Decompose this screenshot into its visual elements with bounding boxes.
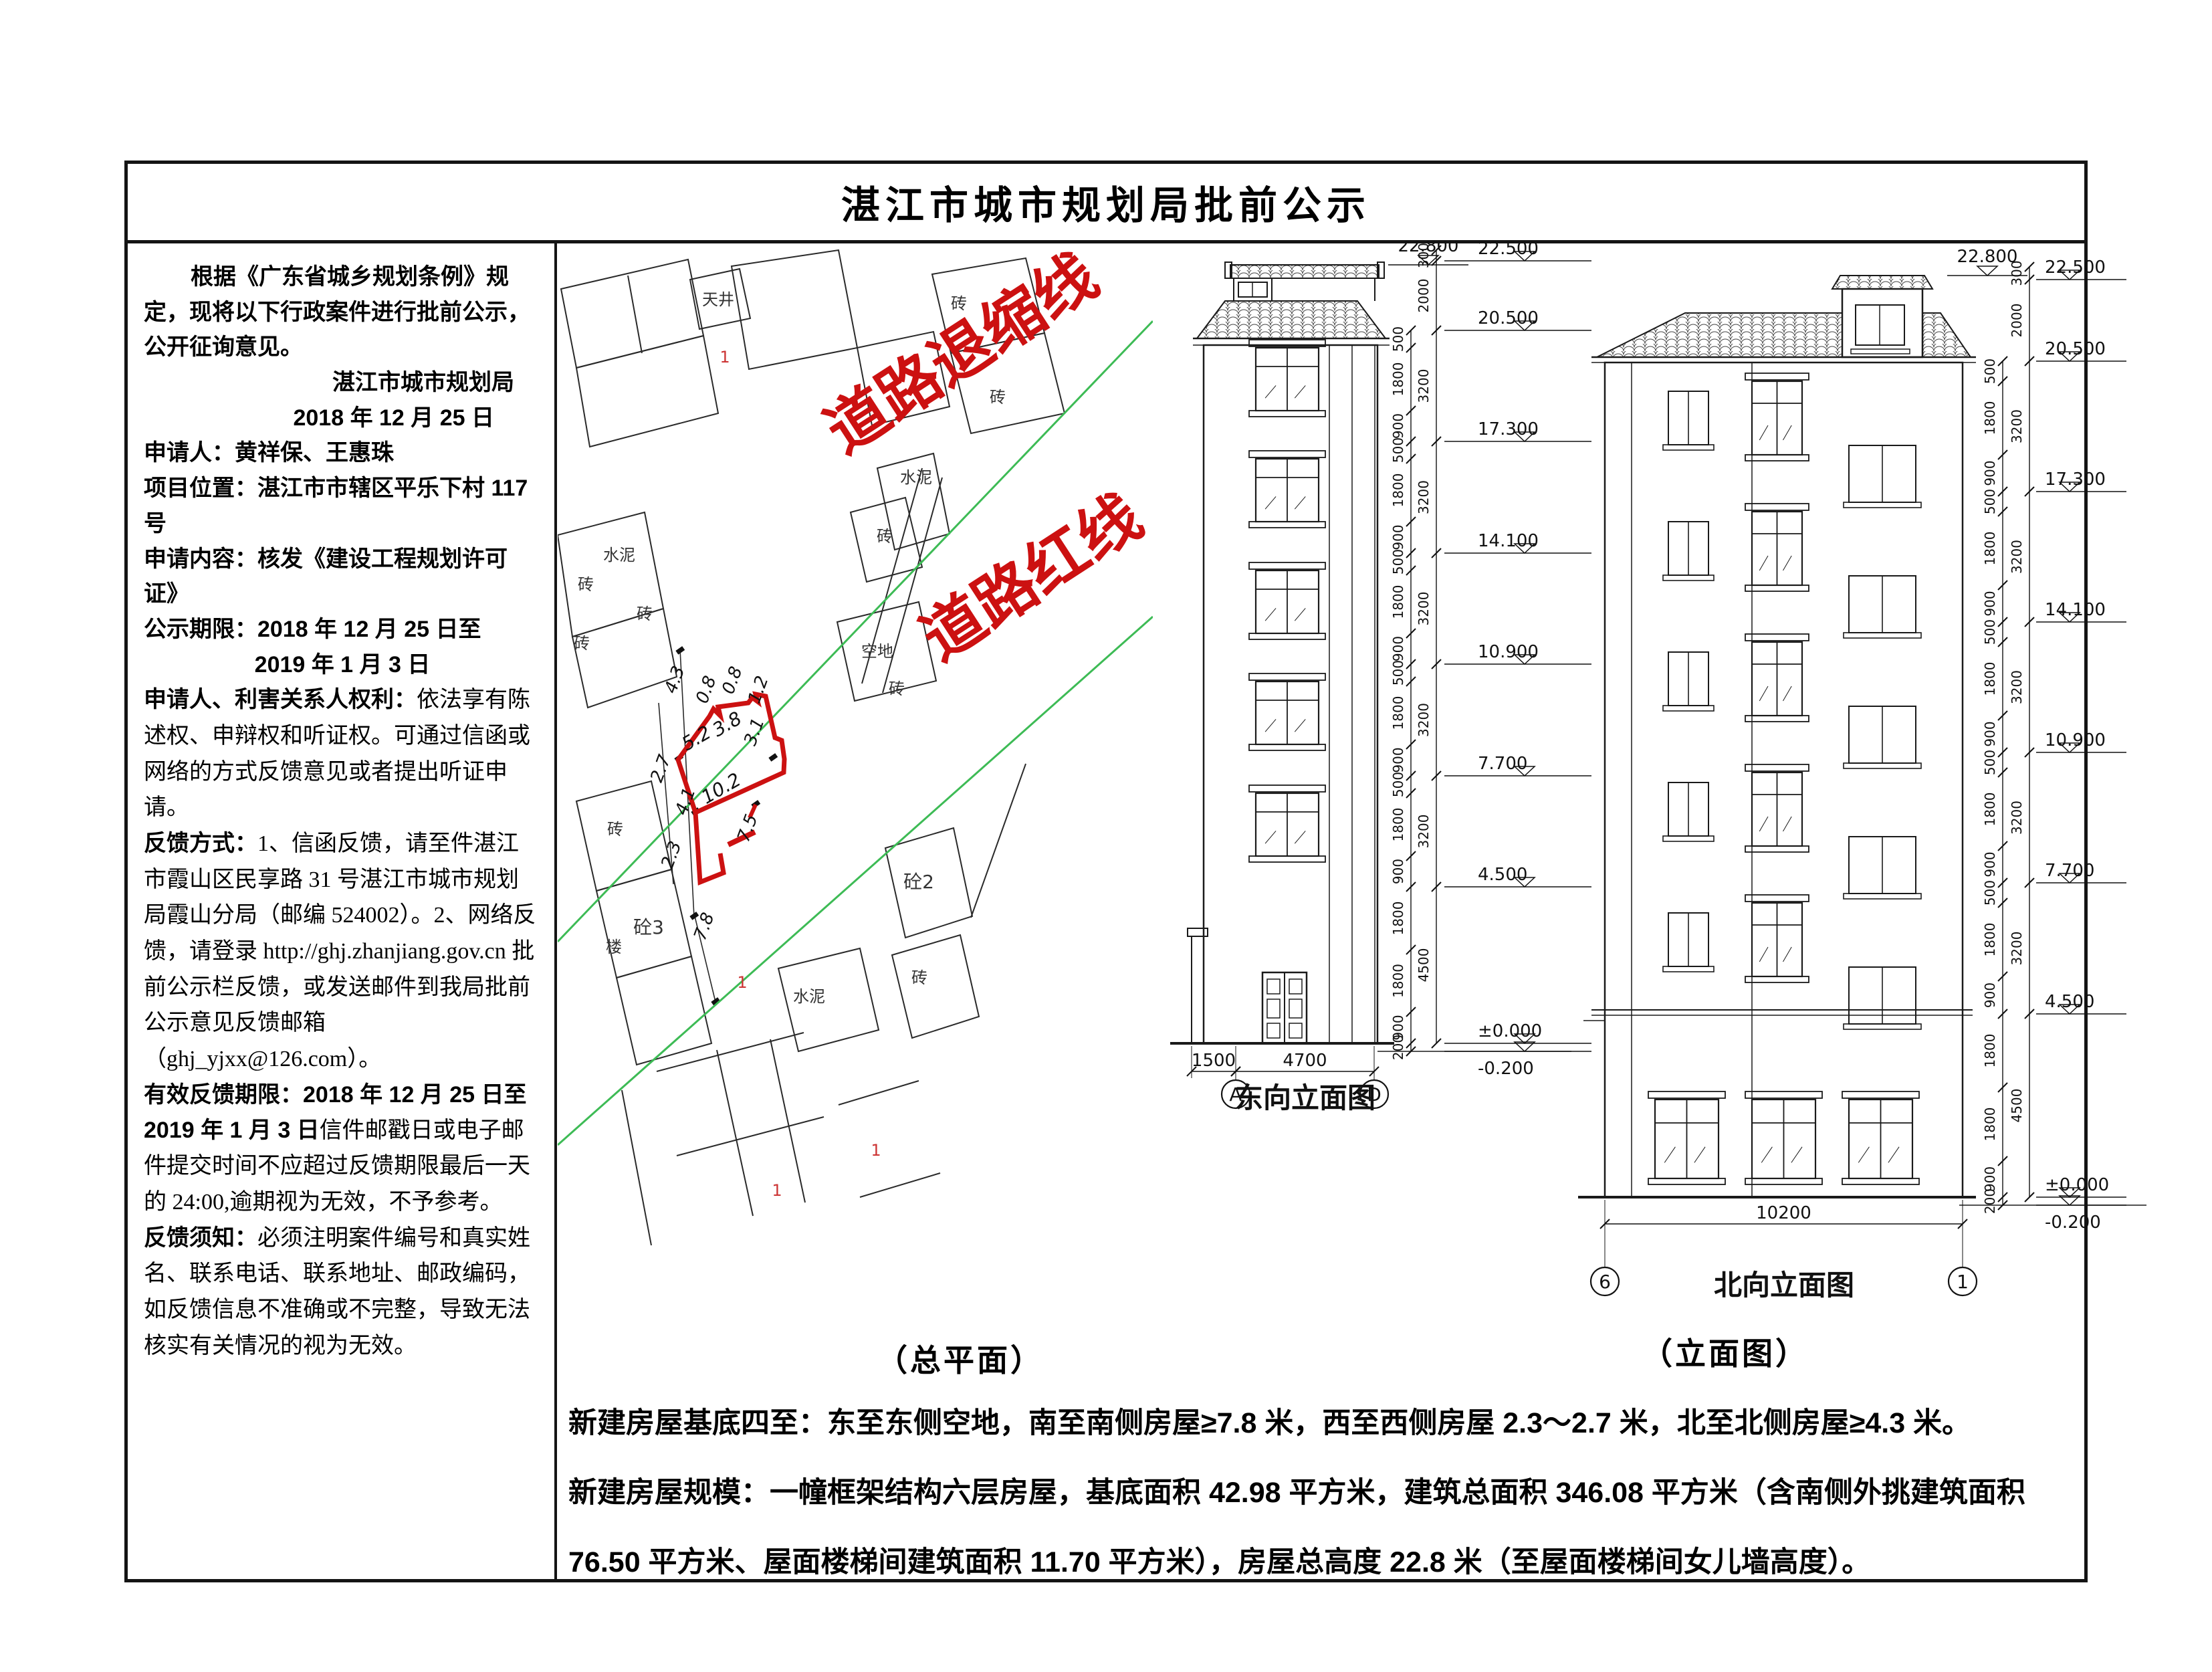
footer-line-1: 新建房屋基底四至：东至东侧空地，南至南侧房屋≥7.8 米，西至西侧房屋 2.3～… [568,1388,2085,1458]
field-value: 黄祥保、王惠珠 [235,440,394,465]
chain-dim: 500 [1982,880,1998,906]
chain-dim: 3200 [2009,540,2025,574]
chain-dim: 4500 [1416,948,1432,982]
chain-dim: 3200 [1416,480,1432,514]
footer-line-3-text: 76.50 平方米、屋面楼梯间建筑面积 11.70 平方米），房屋总高度 22.… [568,1546,1870,1578]
level-label: 22.500 [2045,257,2106,278]
elevation-drawings: 22.80022.50020.50017.30014.10010.9007.70… [1164,241,2207,1344]
parcel-outlines [558,250,1065,1245]
parcel-label: 砖 [637,605,653,623]
parcel-label: 砖 [578,575,594,594]
chain-dim: 500 [1982,358,1998,384]
notice-field-1: 项目位置：湛江市市辖区平乐下村 117 号 [144,471,541,541]
parcel-number: 1 [737,973,747,992]
parcel-label: 砖 [877,527,893,546]
parcel-label: 空地 [861,642,893,661]
level-label: ±0.000 [1478,1021,1542,1041]
field-label: 申请人、利害关系人权利： [144,687,417,712]
chain-dim: 1800 [1390,964,1406,998]
chain-dim: 900 [1982,851,1998,877]
road-red-line [558,617,1153,1145]
elevation-caption: （立面图） [1598,1330,1852,1374]
level-label: 14.100 [2045,600,2106,620]
chain-dim: 1800 [1390,474,1406,508]
field-label: 申请内容： [144,546,257,572]
chain-dim: 3200 [1416,592,1432,626]
building-description: 新建房屋基底四至：东至东侧空地，南至南侧房屋≥7.8 米，西至西侧房屋 2.3～… [568,1388,2085,1597]
level-label: ±0.000 [2045,1175,2109,1195]
footer-line-1-label: 新建房屋基底四至： [568,1407,827,1439]
chain-dim: 3200 [2009,670,2025,704]
notice-field-4: 申请人、利害关系人权利：依法享有陈述权、申辩权和听证权。可通过信函或网络的方式反… [144,682,541,826]
signature-date: 2018 年 12 月 25 日 [144,401,541,436]
chain-dim: 1800 [1390,808,1406,842]
notice-fields: 申请人：黄祥保、王惠珠项目位置：湛江市市辖区平乐下村 117 号申请内容：核发《… [144,435,541,1364]
level-label: 17.300 [1478,419,1539,439]
parcel-label: 砖 [990,388,1006,407]
chain-dim: 1800 [1982,401,1998,435]
bottom-dim: 1500 [1192,1051,1236,1071]
chain-dim: 500 [1390,326,1406,352]
notice-field-2: 申请内容：核发《建设工程规划许可证》 [144,542,541,612]
level-label: 10.900 [1478,642,1539,662]
footer-line-2-label: 新建房屋规模： [568,1477,770,1509]
intro-paragraph: 根据《广东省城乡规划条例》规定，现将以下行政案件进行批前公示，公开征询意见。 [144,259,541,365]
site-plan-drawing: 道路退缩线道路红线4.30.80.81.25.23.83.12.710.24.1… [558,247,1153,1351]
chain-dim: 300 [2009,260,2025,286]
parcel-label: 水泥 [793,987,825,1006]
notice-text-panel: 根据《广东省城乡规划条例》规定，现将以下行政案件进行批前公示，公开征询意见。 湛… [128,243,557,1579]
plot-dim: 2.7 [647,752,675,785]
level-label: -0.200 [1478,1059,1534,1079]
chain-dim: 900 [1390,636,1406,661]
parcel-label: 砖 [574,634,590,653]
chain-dim: 500 [1982,619,1998,645]
chain-dim: 500 [1982,750,1998,775]
notice-field-0: 申请人：黄祥保、王惠珠 [144,435,541,471]
notice-field-5: 反馈方式：1、信函反馈，请至件湛江市霞山区民享路 31 号湛江市城市规划局霞山分… [144,826,541,1077]
field-label: 有效反馈期限： [144,1082,303,1108]
level-label: 14.100 [1478,531,1539,551]
level-label: 20.500 [1478,308,1539,328]
field-label: 反馈须知： [144,1225,257,1251]
site-plan-caption: （总平面） [833,1336,1087,1380]
chain-dim: 1800 [1390,585,1406,619]
chain-dim: 3200 [2009,409,2025,443]
road-setback-line-label: 道路退缩线 [813,247,1110,467]
chain-dim: 3200 [1416,703,1432,737]
public-notice-page: { "title": "湛江市城市规划局批前公示", "left_panel":… [0,0,2212,1672]
level-label: 4.500 [2045,992,2094,1012]
notice-field-7: 反馈须知：必须注明案件编号和真实姓名、联系电话、联系地址、邮政编码，如反馈信息不… [144,1221,541,1364]
plot-dim: 3.1 [740,716,768,748]
parcel-label: 砖 [607,820,623,839]
chain-dim: 2000 [1416,279,1432,313]
plot-dim: 2.3 [657,839,685,871]
chain-dim: 900 [1982,982,1998,1008]
chain-dim: 300 [1416,243,1432,268]
bottom-dim: 10200 [1756,1203,1811,1223]
level-label: 7.700 [1478,754,1527,774]
chain-dim: 1800 [1982,662,1998,696]
level-label: -0.200 [2045,1213,2101,1233]
level-label: 20.500 [2045,339,2106,359]
chain-dim: 500 [1390,549,1406,574]
bottom-dim: 4700 [1283,1051,1327,1071]
parcel-label: 砼3 [633,916,664,938]
parcel-label: 水泥 [900,468,932,487]
chain-dim: 3200 [1416,815,1432,849]
level-label: 17.300 [2045,469,2106,490]
level-label: 7.700 [2045,861,2094,881]
chain-dim: 3200 [2009,801,2025,835]
footer-line-2-text: 一幢框架结构六层房屋，基底面积 42.98 平方米，建筑总面积 346.08 平… [770,1477,2025,1509]
road-red-line-label: 道路红线 [909,480,1153,674]
chain-dim: 4500 [2009,1089,2025,1123]
axis-bubble: 6 [1599,1271,1611,1293]
footer-line-1-text: 东至东侧空地，南至南侧房屋≥7.8 米，西至西侧房屋 2.3～2.7 米，北至北… [827,1407,1971,1439]
elevation-name: 东向立面图 [1235,1081,1375,1114]
chain-dim: 3200 [1416,369,1432,403]
chain-dim: 500 [1390,772,1406,797]
field-value: 2018 年 12 月 25 日至 [257,617,481,642]
chain-dim: 1800 [1982,923,1998,957]
footer-line-3: 76.50 平方米、屋面楼梯间建筑面积 11.70 平方米），房屋总高度 22.… [568,1528,2085,1597]
parcel-label: 砖 [911,968,927,987]
parcel-label: 砼2 [903,871,934,893]
chain-dim: 500 [1390,437,1406,463]
chain-dim: 1800 [1390,362,1406,397]
plot-dim: 0.8 [692,673,720,706]
chain-dim: 2000 [2009,304,2025,338]
chain-dim: 3200 [2009,932,2025,966]
elevation-name: 北向立面图 [1714,1269,1854,1301]
chain-dim: 900 [1982,460,1998,486]
level-label: 10.900 [2045,730,2106,750]
notice-field-6: 有效反馈期限：2018 年 12 月 25 日至 2019 年 1 月 3 日信… [144,1077,541,1221]
signature-agency: 湛江市城市规划局 [144,365,541,401]
chain-dim: 900 [1390,747,1406,772]
field-label: 项目位置： [144,476,257,501]
level-label: 22.500 [1478,241,1539,259]
chain-dim: 500 [1982,489,1998,514]
plot-dim: 0.8 [718,664,746,697]
parcel-number: 1 [772,1181,782,1200]
field-label: 申请人： [144,440,235,465]
axis-bubble: 1 [1957,1271,1969,1293]
chain-dim: 1800 [1982,1108,1998,1142]
notice-field-3: 公示期限：2018 年 12 月 25 日至2019 年 1 月 3 日 [144,612,541,682]
parcel-label: 天井 [702,290,734,309]
chain-dim: 900 [1982,721,1998,746]
parcel-label: 砖 [889,680,905,698]
chain-dim: 900 [1390,413,1406,439]
chain-dim: 1800 [1982,532,1998,566]
field-value-line2: 2019 年 1 月 3 日 [144,647,541,683]
footer-line-2: 新建房屋规模：一幢框架结构六层房屋，基底面积 42.98 平方米，建筑总面积 3… [568,1458,2085,1528]
plot-dim: 7.5 [734,812,762,845]
chain-dim: 500 [1390,660,1406,686]
chain-dim: 1800 [1982,793,1998,827]
chain-dim: 900 [1982,1166,1998,1192]
parcel-label: 砖 [951,294,967,313]
chain-dim: 1800 [1390,902,1406,936]
chain-dim: 1800 [1982,1034,1998,1068]
field-label: 公示期限： [144,617,257,642]
chain-dim: 200 [1982,1188,1998,1214]
parcel-label: 水泥 [603,546,635,564]
parcel-label: 楼 [606,938,622,956]
chain-dim: 900 [1390,524,1406,550]
page-title: 湛江市城市规划局批前公示 [128,164,2084,243]
level-label: 4.500 [1478,865,1527,885]
chain-dim: 200 [1390,1035,1406,1060]
field-label: 反馈方式： [144,831,257,856]
chain-dim: 1800 [1390,696,1406,730]
chain-dim: 900 [1390,859,1406,884]
parcel-number: 1 [871,1141,881,1160]
chain-dim: 900 [1982,591,1998,616]
field-value: 1、信函反馈，请至件湛江市霞山区民享路 31 号湛江市城市规划局霞山分局（邮编 … [144,831,536,1071]
plot-dim: 4.3 [661,663,689,696]
parcel-number: 1 [720,348,730,367]
